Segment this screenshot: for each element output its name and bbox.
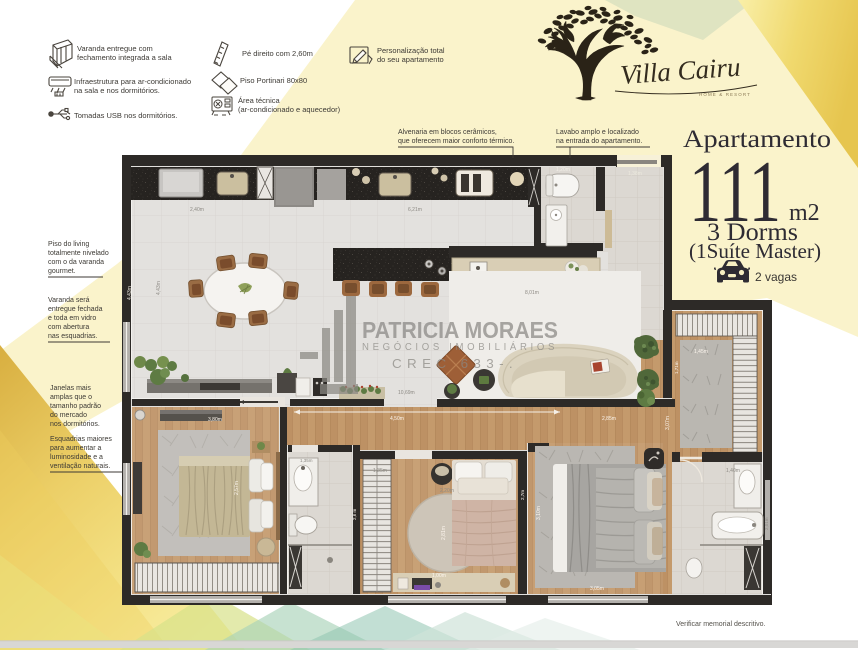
svg-text:2 vagas: 2 vagas — [755, 270, 797, 284]
svg-text:Varanda entregue com: Varanda entregue com — [77, 44, 153, 53]
svg-text:2,81m: 2,81m — [441, 526, 447, 540]
svg-text:3,80m: 3,80m — [208, 417, 222, 423]
svg-text:1,20m: 1,20m — [556, 167, 570, 173]
svg-text:com abertura: com abertura — [48, 324, 89, 331]
svg-text:fechamento integrada a sala: fechamento integrada a sala — [77, 53, 172, 62]
svg-text:Piso Portinari 80x80: Piso Portinari 80x80 — [240, 76, 307, 85]
svg-text:8,01m: 8,01m — [525, 290, 539, 296]
svg-text:1,00m: 1,00m — [432, 573, 446, 579]
svg-text:Área técnica: Área técnica — [238, 96, 281, 105]
svg-text:com o da varanda: com o da varanda — [48, 259, 104, 266]
svg-text:2,7m: 2,7m — [520, 490, 525, 500]
svg-text:Lavabo amplo e localizado: Lavabo amplo e localizado — [556, 129, 639, 136]
svg-text:HOME & RESORT: HOME & RESORT — [699, 92, 751, 97]
svg-text:do mercado: do mercado — [50, 412, 87, 419]
svg-text:2,01m: 2,01m — [764, 517, 769, 530]
svg-text:2,85m: 2,85m — [602, 416, 616, 422]
svg-text:1,38m: 1,38m — [628, 171, 642, 177]
svg-text:Janelas mais: Janelas mais — [50, 385, 91, 392]
svg-text:CREC 633-.: CREC 633-. — [392, 357, 518, 371]
svg-text:Pé direito com 2,60m: Pé direito com 2,60m — [242, 49, 313, 58]
svg-text:ventilação naturais.: ventilação naturais. — [50, 463, 110, 470]
svg-text:4,43m: 4,43m — [127, 286, 133, 300]
svg-text:Verificar memorial descritivo.: Verificar memorial descritivo. — [676, 621, 766, 628]
svg-text:para aumentar a: para aumentar a — [50, 445, 101, 452]
svg-text:Varanda será: Varanda será — [48, 297, 90, 304]
svg-text:totalmente nivelado: totalmente nivelado — [48, 250, 109, 257]
svg-text:PATRICIA MORAES: PATRICIA MORAES — [362, 317, 558, 343]
svg-text:do seu apartamento: do seu apartamento — [377, 55, 444, 64]
svg-text:3,10m: 3,10m — [536, 506, 542, 520]
svg-text:entregue fechada: entregue fechada — [48, 306, 103, 313]
svg-text:6,21m: 6,21m — [408, 207, 422, 213]
svg-text:3,05m: 3,05m — [590, 586, 604, 592]
svg-text:4,50m: 4,50m — [390, 416, 404, 422]
svg-text:Infraestrutura para ar-condici: Infraestrutura para ar-condicionado — [74, 77, 191, 86]
svg-text:4,43m: 4,43m — [156, 281, 162, 295]
svg-text:na entrada do apartamento.: na entrada do apartamento. — [556, 138, 642, 145]
svg-text:tamanho padrão: tamanho padrão — [50, 403, 101, 410]
svg-text:NEGÓCIOS IMOBILIÁRIOS: NEGÓCIOS IMOBILIÁRIOS — [362, 340, 558, 353]
svg-text:2,6 m: 2,6 m — [352, 508, 357, 520]
svg-text:luminosidade e a: luminosidade e a — [50, 454, 103, 461]
svg-text:Personalização total: Personalização total — [377, 46, 445, 55]
svg-text:Alvenaria em blocos cerâmicos,: Alvenaria em blocos cerâmicos, — [398, 129, 497, 136]
svg-text:1,45m: 1,45m — [694, 349, 708, 355]
svg-text:3,07m: 3,07m — [665, 416, 671, 430]
svg-text:1,40m: 1,40m — [726, 468, 740, 474]
svg-text:que oferecem maior conforto té: que oferecem maior conforto térmico. — [398, 138, 514, 145]
svg-text:Piso do living: Piso do living — [48, 241, 89, 248]
svg-text:2,40m: 2,40m — [190, 207, 204, 213]
svg-text:nos dormitórios.: nos dormitórios. — [50, 421, 100, 428]
svg-text:na sala e nos dormitórios.: na sala e nos dormitórios. — [74, 86, 160, 95]
svg-text:(1Suíte Master): (1Suíte Master) — [689, 239, 821, 263]
svg-text:Esquadrias maiores: Esquadrias maiores — [50, 436, 112, 443]
svg-text:amplas que o: amplas que o — [50, 394, 92, 401]
svg-text:Tomadas USB nos dormitórios.: Tomadas USB nos dormitórios. — [74, 111, 177, 120]
svg-text:1,71m: 1,71m — [674, 361, 679, 374]
svg-text:e toda em vidro: e toda em vidro — [48, 315, 96, 322]
svg-text:1,35m: 1,35m — [300, 458, 313, 463]
svg-text:10,69m: 10,69m — [398, 390, 415, 396]
svg-text:(ar-condicionado e aquecedor): (ar-condicionado e aquecedor) — [238, 105, 341, 114]
svg-text:nas esquadrias.: nas esquadrias. — [48, 333, 97, 340]
svg-text:1,35m: 1,35m — [373, 468, 387, 474]
svg-text:gourmet.: gourmet. — [48, 268, 76, 275]
svg-text:2,20m: 2,20m — [440, 488, 454, 494]
svg-text:2,57m: 2,57m — [234, 481, 240, 495]
